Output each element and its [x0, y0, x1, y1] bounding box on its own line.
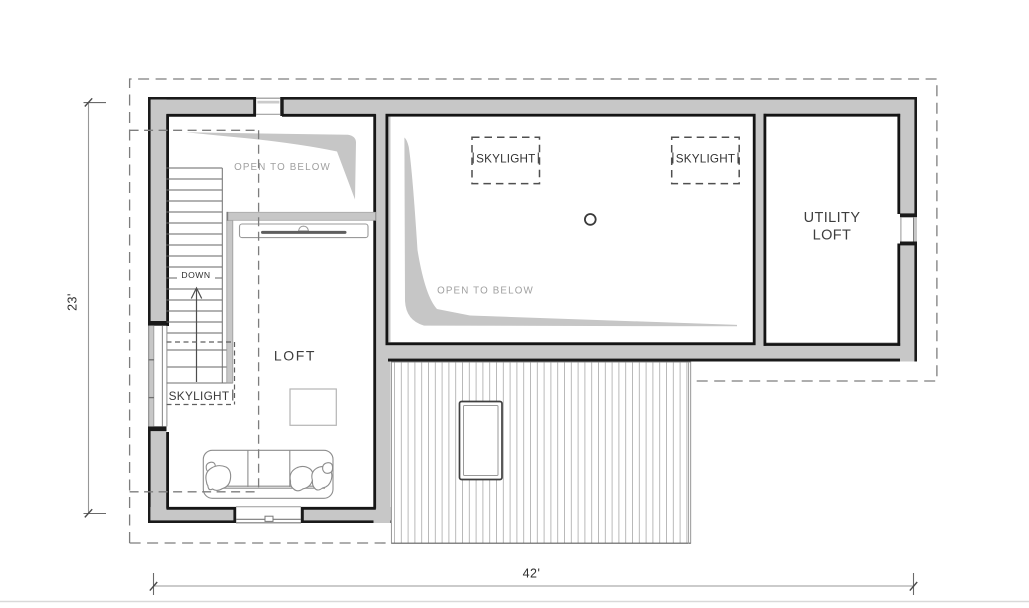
svg-text:SKYLIGHT: SKYLIGHT [676, 153, 735, 166]
svg-text:UTILITY: UTILITY [804, 210, 861, 226]
svg-text:OPEN TO BELOW: OPEN TO BELOW [437, 286, 534, 297]
svg-text:LOFT: LOFT [274, 347, 316, 363]
svg-text:DOWN: DOWN [181, 270, 210, 280]
svg-text:SKYLIGHT: SKYLIGHT [476, 153, 535, 166]
svg-text:42': 42' [523, 567, 541, 581]
svg-text:OPEN TO BELOW: OPEN TO BELOW [234, 162, 331, 173]
svg-text:LOFT: LOFT [813, 228, 852, 244]
svg-text:23': 23' [66, 293, 80, 311]
svg-text:SKYLIGHT: SKYLIGHT [169, 389, 230, 403]
